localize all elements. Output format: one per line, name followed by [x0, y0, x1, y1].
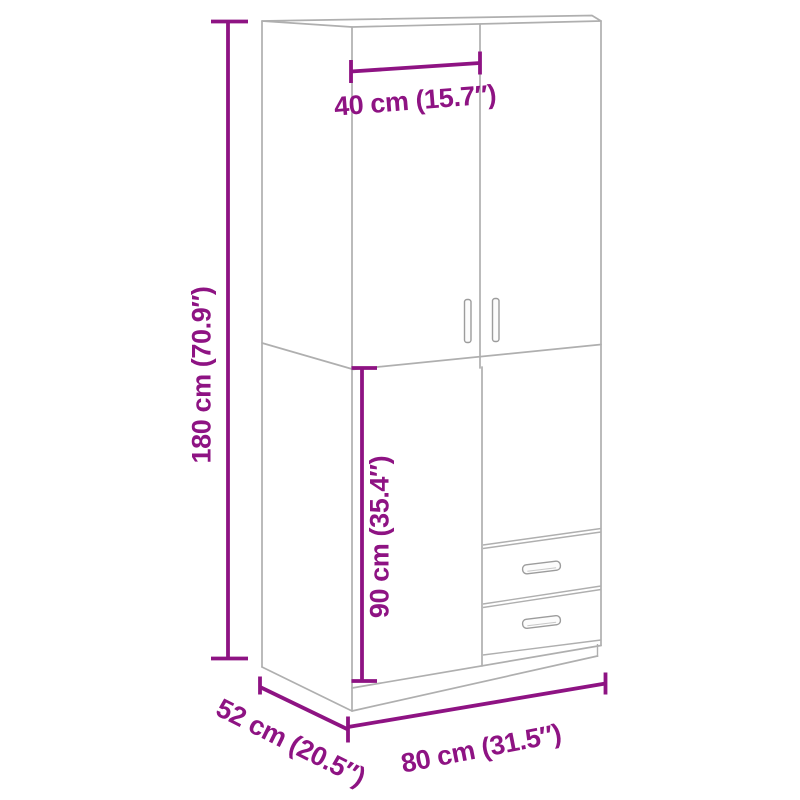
wardrobe-front-divider — [352, 345, 601, 370]
height-dimension-label: 180 cm (70.9″) — [186, 287, 216, 464]
dimension-diagram: 180 cm (70.9″) 40 cm (15.7″) 90 cm (35.4… — [0, 0, 800, 800]
drawer-gap-line — [483, 586, 601, 604]
drawer1-handle — [522, 561, 561, 575]
drawer2-bottom-line — [483, 640, 601, 655]
wardrobe-handles — [465, 299, 561, 629]
drawer1-top-line — [483, 529, 601, 546]
wardrobe-side-bottom-edge — [262, 667, 352, 711]
left-door-handle — [465, 300, 472, 343]
dimension-overall-width: 80 cm (31.5″) — [348, 673, 606, 779]
width-dimension-label: 80 cm (31.5″) — [399, 718, 564, 778]
dimension-depth: 52 cm (20.5″) — [211, 677, 370, 793]
wardrobe-bottom-edge — [352, 646, 601, 689]
lower-height-dimension-label: 90 cm (35.4″) — [364, 456, 394, 618]
wardrobe-diagram-canvas: 180 cm (70.9″) 40 cm (15.7″) 90 cm (35.4… — [0, 0, 800, 800]
drawer2-handle — [522, 615, 561, 629]
drawer-gap-line-2 — [483, 590, 601, 608]
door-width-dimension-label: 40 cm (15.7″) — [333, 79, 497, 122]
wardrobe-outline — [262, 16, 601, 712]
drawer1-top-line-2 — [483, 532, 601, 549]
plinth-floor-line — [352, 656, 598, 711]
width-dimension-line — [348, 684, 606, 728]
wardrobe-top-face — [262, 16, 601, 28]
door-width-dimension-line — [351, 63, 480, 72]
right-door-handle — [493, 299, 500, 342]
dimension-lower-height: 90 cm (35.4″) — [352, 368, 395, 681]
dimension-overall-height: 180 cm (70.9″) — [186, 22, 248, 659]
wardrobe-side-divider — [262, 343, 352, 369]
dimension-door-width: 40 cm (15.7″) — [333, 52, 497, 122]
